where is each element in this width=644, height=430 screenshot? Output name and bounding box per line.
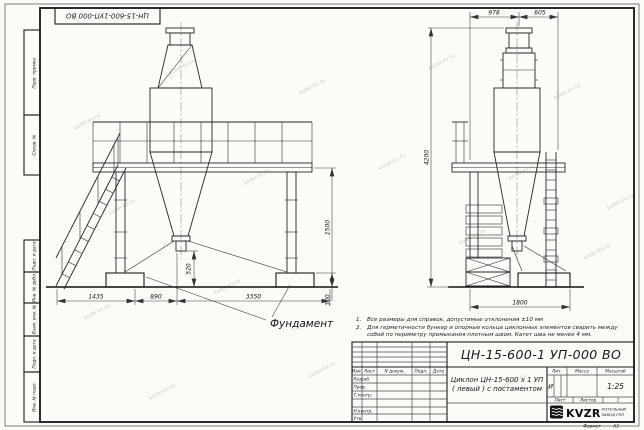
tb-logo-text: KVZR bbox=[566, 407, 601, 420]
dim-top-right: 605 bbox=[534, 10, 546, 17]
svg-text:kotel-kv.ru: kotel-kv.ru bbox=[553, 83, 582, 102]
note-number: 1. bbox=[356, 317, 364, 324]
svg-text:kotel-kv.ru: kotel-kv.ru bbox=[298, 78, 327, 97]
tb-scale-value: 1:25 bbox=[607, 382, 624, 391]
dim-support-span: 3350 bbox=[246, 294, 261, 301]
dim-foundation-height: 300 bbox=[325, 294, 332, 306]
tb-product-name-line1: Циклон ЦН-15-600 х 1 УП bbox=[451, 376, 544, 385]
tb-format-value: А3 bbox=[612, 424, 619, 430]
top-left-stamp: ЦН-15-600-1УП-000 ВО bbox=[55, 8, 160, 24]
dim-platform-height: 1500 bbox=[325, 220, 332, 235]
note-item: 2. Для герметичности бункер и опорные ко… bbox=[356, 325, 632, 339]
tb-product-name-line2: ( левый ) с постаментом bbox=[452, 385, 542, 394]
tb-col-list: Лист bbox=[363, 369, 375, 375]
svg-text:kotel-kv.ru: kotel-kv.ru bbox=[168, 58, 197, 77]
svg-text:kotel-kv.ru: kotel-kv.ru bbox=[378, 153, 407, 172]
tb-col-data: Дата bbox=[432, 369, 444, 375]
technical-notes: 1. Все размеры для справок, допустимые о… bbox=[356, 317, 632, 340]
tb-col-ndokum: N докум. bbox=[385, 369, 405, 375]
tb-col-podp: Подп. bbox=[414, 369, 427, 375]
svg-text:kotel-kv.ru: kotel-kv.ru bbox=[458, 228, 487, 247]
margin-cell-label: Подп. и дата bbox=[32, 241, 38, 271]
svg-text:kotel-kv.ru: kotel-kv.ru bbox=[583, 243, 612, 262]
foundation-callout-label: Фундамент bbox=[270, 318, 334, 330]
tb-sheets-value: 1 bbox=[617, 398, 620, 404]
dim-mid-span: 890 bbox=[150, 294, 162, 301]
tb-logo-caption2: ЗАВОД РЭП bbox=[602, 412, 625, 417]
dim-top-left: 978 bbox=[488, 10, 500, 17]
tb-format-label: Формат bbox=[583, 424, 601, 430]
tb-product-name: Циклон ЦН-15-600 х 1 УП ( левый ) с пост… bbox=[448, 368, 546, 402]
margin-cell-label: Подп. и дата bbox=[32, 339, 38, 369]
note-text: Все размеры для справок, допустимые откл… bbox=[367, 317, 543, 324]
dim-total-height: 4200 bbox=[424, 150, 431, 165]
left-margin-column: Перв. примен. Справ. № Подп. и дата Инв.… bbox=[24, 30, 40, 422]
tb-scale-label: Масштаб bbox=[605, 369, 626, 375]
foundation-block-left bbox=[106, 273, 144, 287]
note-number: 2. bbox=[356, 325, 364, 339]
tb-row-tkontr: Т.контр. bbox=[354, 393, 373, 399]
svg-text:kotel-kv.ru: kotel-kv.ru bbox=[108, 198, 137, 217]
stamp-doc-number: ЦН-15-600-1УП-000 ВО bbox=[66, 12, 149, 20]
tb-mass-label: Масса bbox=[575, 369, 589, 375]
tb-lit-value: И bbox=[548, 383, 553, 391]
svg-text:kotel-kv.ru: kotel-kv.ru bbox=[148, 383, 177, 402]
tb-lit-label: Лит. bbox=[551, 369, 562, 375]
svg-text:kotel-kv.ru: kotel-kv.ru bbox=[243, 168, 272, 187]
note-text: Для герметичности бункер и опорные кольц… bbox=[367, 325, 632, 339]
margin-cell-label: Инв. № подл. bbox=[32, 382, 38, 412]
note-item: 1. Все размеры для справок, допустимые о… bbox=[356, 317, 632, 324]
tb-row-prov: Пров. bbox=[354, 385, 367, 391]
tb-logo-caption1: КОТЕЛЬНЫЙ bbox=[602, 407, 627, 412]
kvzr-logo-icon bbox=[550, 406, 563, 419]
drawing-sheet: kotel-kv.ru kotel-kv.ru kotel-kv.ru kote… bbox=[0, 0, 644, 430]
tb-sheets-label: Листов bbox=[579, 398, 597, 404]
cyclone-side-view bbox=[448, 22, 584, 287]
tb-doc-number: ЦН-15-600-1 УП-000 ВО bbox=[448, 342, 634, 367]
dim-side-width: 1800 bbox=[512, 300, 527, 307]
tb-col-izm: Изм. bbox=[352, 369, 362, 375]
tb-row-utv: Утв. bbox=[354, 416, 363, 422]
svg-text:kotel-kv.ru: kotel-kv.ru bbox=[606, 193, 635, 212]
tb-row-razrab: Разраб. bbox=[354, 377, 371, 383]
margin-cell-label: Перв. примен. bbox=[32, 56, 38, 88]
svg-text:kotel-kv.ru: kotel-kv.ru bbox=[308, 361, 337, 380]
margin-cell-label: Справ. № bbox=[32, 134, 38, 155]
margin-cell-label: Взам. инв. № bbox=[32, 304, 38, 334]
dim-stair-run: 1435 bbox=[88, 294, 103, 301]
dim-outlet-clearance: 520 bbox=[186, 263, 193, 275]
svg-text:kotel-kv.ru: kotel-kv.ru bbox=[83, 303, 112, 322]
tb-sheet-label: Лист bbox=[554, 398, 566, 404]
svg-text:kotel-kv.ru: kotel-kv.ru bbox=[428, 53, 457, 72]
foundation-block-right bbox=[276, 273, 314, 287]
margin-cell-label: Инв. № дубл. bbox=[32, 273, 38, 302]
foundation-block-side bbox=[518, 273, 570, 287]
tb-row-nkontr: Н.контр. bbox=[354, 409, 373, 415]
